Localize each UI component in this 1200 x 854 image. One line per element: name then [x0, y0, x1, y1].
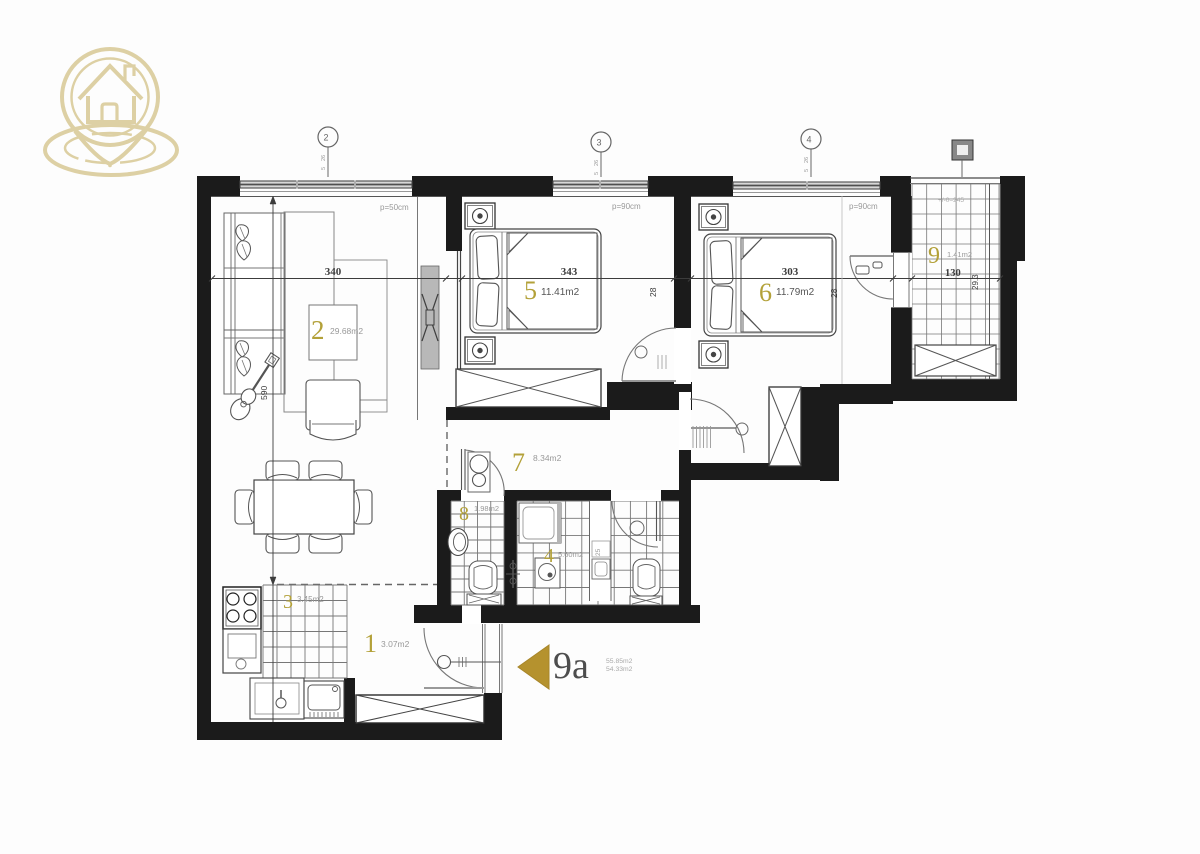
svg-text:11.79m2: 11.79m2 [776, 287, 815, 298]
svg-text:2: 2 [323, 133, 328, 143]
svg-text:4: 4 [806, 135, 811, 145]
svg-text:303: 303 [782, 266, 799, 278]
svg-text:p=90cm: p=90cm [612, 202, 641, 211]
svg-text:54.33m2: 54.33m2 [606, 666, 633, 673]
svg-text:8.34m2: 8.34m2 [533, 453, 562, 463]
svg-text:7: 7 [512, 448, 525, 477]
svg-text:26: 26 [594, 160, 600, 166]
svg-text:3: 3 [596, 138, 601, 148]
svg-text:1.98m2: 1.98m2 [474, 504, 499, 513]
svg-text:2: 2 [311, 315, 325, 345]
svg-text:p=90cm: p=90cm [849, 202, 878, 211]
svg-text:1.41m2: 1.41m2 [947, 250, 972, 259]
svg-text:25: 25 [595, 548, 602, 556]
svg-text:28: 28 [648, 287, 658, 297]
svg-text:29.68m2: 29.68m2 [330, 326, 363, 336]
svg-text:1: 1 [364, 629, 377, 658]
svg-text:29.3: 29.3 [971, 274, 980, 290]
svg-text:340: 340 [325, 266, 342, 278]
svg-text:26: 26 [804, 157, 810, 163]
svg-text:11.41m2: 11.41m2 [541, 287, 580, 298]
svg-text:5.60m2: 5.60m2 [558, 550, 583, 559]
svg-text:343: 343 [561, 266, 578, 278]
svg-text:28: 28 [829, 288, 839, 298]
svg-text:5: 5 [524, 276, 537, 305]
svg-text:5: 5 [804, 169, 810, 172]
svg-text:9: 9 [928, 243, 940, 269]
svg-text:5: 5 [321, 167, 327, 170]
svg-text:3.45m2: 3.45m2 [297, 595, 324, 604]
svg-text:8: 8 [459, 503, 469, 525]
svg-text:+/-0=245: +/-0=245 [938, 197, 964, 204]
svg-text:p=50cm: p=50cm [380, 203, 409, 212]
svg-text:3: 3 [283, 591, 293, 613]
svg-text:6: 6 [759, 278, 772, 307]
svg-text:3.07m2: 3.07m2 [381, 639, 410, 649]
svg-text:590: 590 [259, 386, 269, 400]
svg-text:26: 26 [321, 155, 327, 161]
svg-text:4: 4 [544, 545, 554, 567]
svg-text:9a: 9a [553, 645, 589, 687]
svg-text:130: 130 [945, 268, 961, 279]
svg-text:55.85m2: 55.85m2 [606, 658, 633, 665]
svg-text:5: 5 [594, 172, 600, 175]
